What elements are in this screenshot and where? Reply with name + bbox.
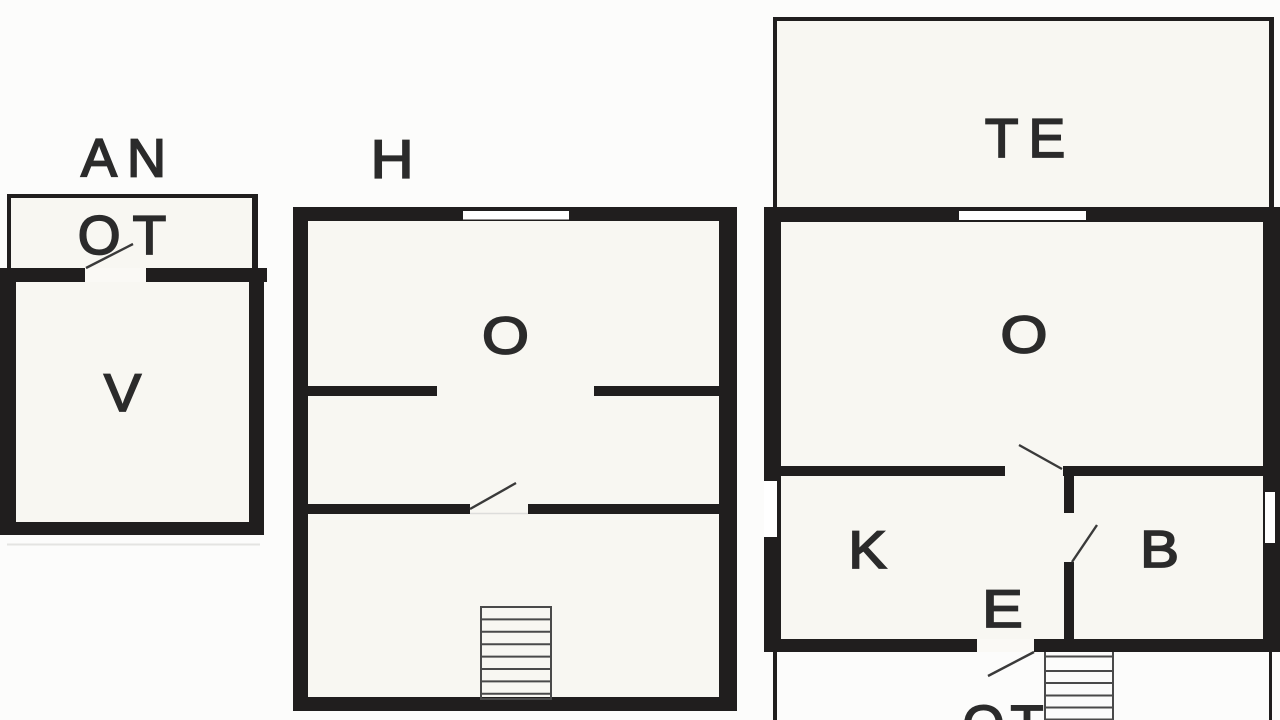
svg-text:H: H [371, 130, 414, 190]
svg-text:AN: AN [81, 129, 176, 189]
svg-text:O: O [1001, 305, 1048, 363]
svg-text:E: E [982, 580, 1023, 639]
svg-text:OT: OT [963, 695, 1050, 720]
svg-text:OT: OT [78, 204, 178, 266]
svg-text:B: B [1140, 520, 1179, 578]
svg-text:V: V [104, 363, 141, 422]
svg-text:K: K [848, 520, 886, 580]
svg-text:TE: TE [985, 107, 1075, 169]
svg-text:O: O [482, 306, 529, 364]
